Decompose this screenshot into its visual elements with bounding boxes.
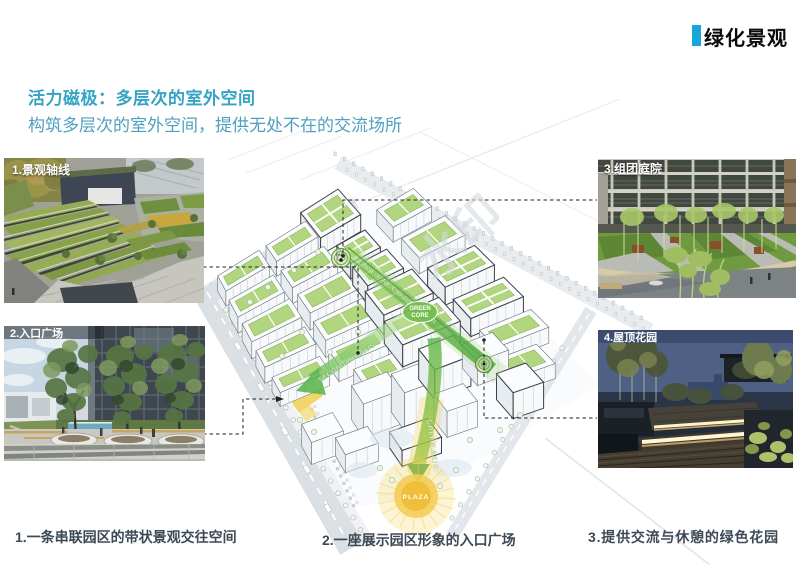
svg-text:PARK: PARK (336, 253, 346, 257)
svg-text:4.屋顶花园: 4.屋顶花园 (604, 330, 657, 344)
svg-text:PLAZA: PLAZA (403, 494, 430, 501)
svg-text:CORE: CORE (411, 313, 428, 319)
svg-text:1.景观轴线: 1.景观轴线 (12, 162, 70, 177)
svg-text:3.组团庭院: 3.组团庭院 (604, 161, 662, 176)
svg-text:GREEN: GREEN (409, 306, 430, 312)
svg-text:2.入口广场: 2.入口广场 (10, 326, 63, 340)
